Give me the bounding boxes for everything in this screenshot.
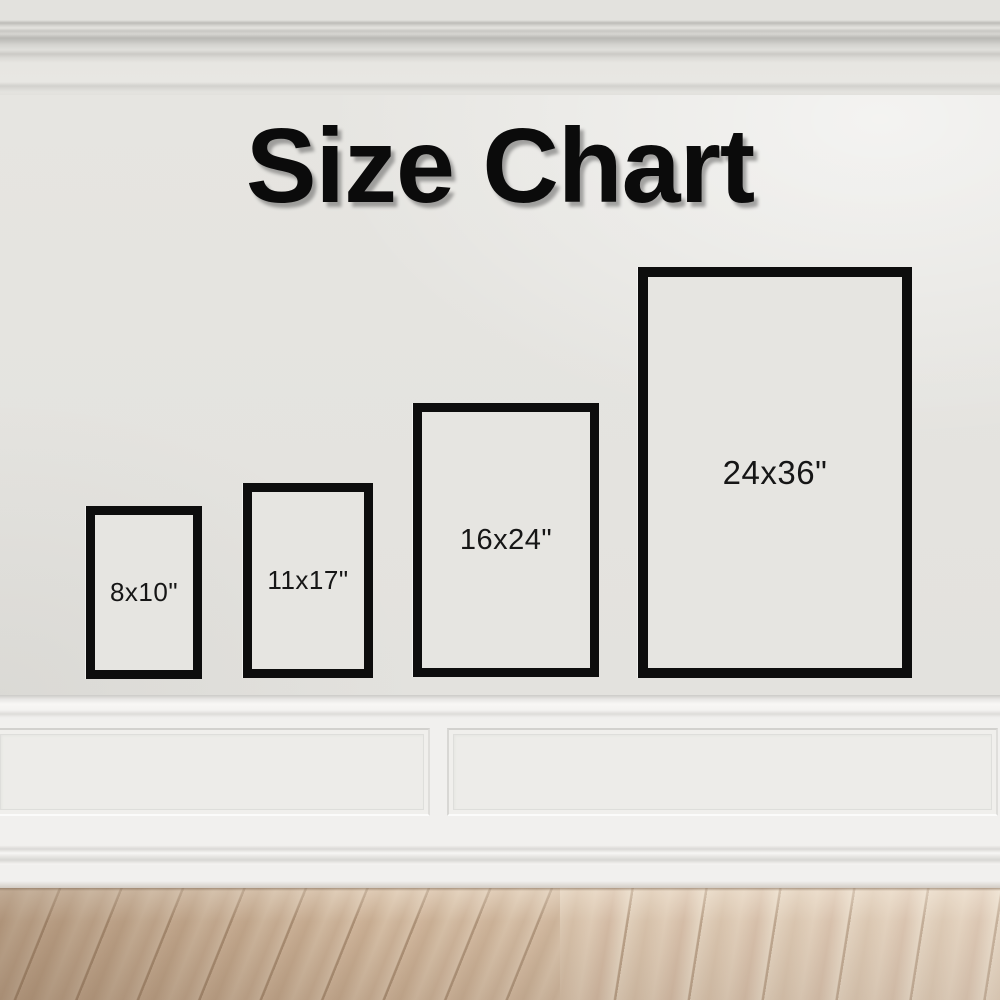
- size-frame-16x24: 16x24": [413, 403, 599, 677]
- chair-rail: [0, 695, 1000, 719]
- size-label-16x24: 16x24": [460, 524, 552, 557]
- wood-floor: [0, 888, 1000, 1000]
- wainscot-panel-left: [0, 728, 430, 816]
- wainscot-panel-right-inner: [453, 734, 992, 810]
- size-label-8x10: 8x10": [110, 577, 178, 608]
- baseboard: [0, 845, 1000, 865]
- floor-wall-edge: [0, 888, 1000, 891]
- size-frame-11x17: 11x17": [243, 483, 373, 678]
- size-frame-24x36: 24x36": [638, 267, 912, 678]
- size-frame-8x10: 8x10": [86, 506, 202, 679]
- wainscot: [0, 695, 1000, 888]
- baseboard-shadow: [0, 881, 1000, 888]
- wainscot-panel-right: [447, 728, 998, 816]
- size-label-24x36: 24x36": [723, 454, 828, 492]
- size-chart-graphic: Size Chart 8x10" 11x17" 16x24" 24x36": [0, 0, 1000, 1000]
- page-title: Size Chart: [0, 113, 1000, 219]
- crown-molding: [0, 0, 1000, 95]
- wainscot-panel-left-inner: [0, 734, 424, 810]
- floor-shading: [0, 888, 1000, 1000]
- size-label-11x17: 11x17": [267, 565, 348, 596]
